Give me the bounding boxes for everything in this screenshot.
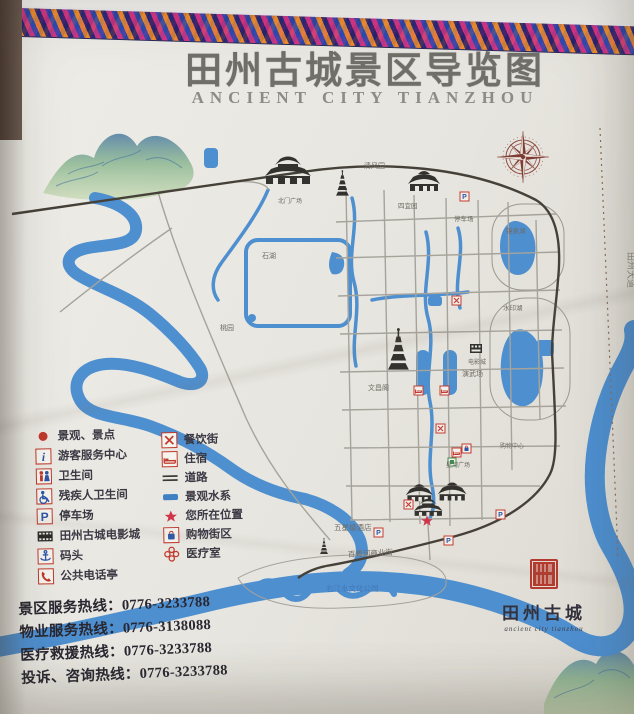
svg-text:P: P (376, 530, 381, 537)
svg-text:P: P (41, 509, 49, 523)
legend-item-shopping-district: 购物街区 (163, 525, 244, 543)
legend-item-visitor-center: i 游客服务中心 (35, 446, 139, 464)
label-shihu: 石湖 (262, 251, 276, 260)
legend-item-parking: P 停车场 (36, 506, 140, 524)
pavilion-icon (320, 538, 328, 554)
map-sign-photo: P P P P 清风园 北门广场 四宜园 停车场 镜泉湖 水印湖 石湖 桃园 文… (0, 0, 634, 714)
page-subtitle: ANCIENT CITY TIANZHOU (150, 88, 580, 108)
lodging-bed-icon (161, 450, 178, 467)
label-beimen-square: 北门广场 (278, 197, 302, 205)
label-culture-park: 右江水文化公园 (326, 583, 379, 593)
temple-hall-icon (438, 483, 467, 501)
label-jingquan-lake: 镜泉湖 (506, 226, 526, 235)
label-xinghe-square: 星河广场 (446, 461, 470, 469)
medical-room-icon (163, 545, 180, 562)
label-qingfengyuan: 清风园 (364, 161, 385, 170)
toilet-icon (35, 467, 52, 484)
shopping-bag-icon (163, 526, 180, 543)
svg-text:P: P (462, 194, 467, 201)
legend-item-lodging: 住宿 (161, 449, 242, 467)
compass-rose-icon (497, 131, 549, 183)
label-shopping-center: 购物中心 (500, 442, 524, 450)
label-right-road: 田州大道 (626, 252, 634, 288)
south-gate-icon (414, 499, 443, 516)
svg-text:P: P (446, 538, 451, 545)
legend-item-toilet: 卫生间 (35, 466, 139, 484)
pagoda-icon (336, 170, 349, 196)
road-lines-icon (161, 469, 178, 486)
legend-item-road: 道路 (161, 468, 242, 486)
accessible-toilet-icon (36, 487, 53, 504)
you-are-here-star-icon (162, 507, 179, 524)
brand-script: ancient city tianzhou (492, 625, 596, 633)
hotline-block: 景区服务热线：0776-3233788 物业服务热线：0776-3138088 … (18, 590, 228, 691)
legend-item-wharf: 码头 (37, 546, 141, 564)
cinema-filmstrip-icon (36, 527, 53, 544)
mountains-decoration-bottomright (544, 651, 634, 714)
public-phone-icon (37, 567, 54, 584)
label-cinema: 电影城 (468, 358, 486, 366)
label-wenchang-pavilion: 文昌阁 (368, 383, 389, 392)
seal-icon (529, 558, 559, 590)
label-commercial-street: 百粤河商业街 (348, 547, 394, 559)
legend-column-left: 景观、景点 i 游客服务中心 卫生间 残疾人卫生间 P 停车场 田州古城电影城 (34, 426, 141, 584)
legend-item-scenic-water: 景观水系 (162, 487, 243, 505)
brand-block: 田州古城 ancient city tianzhou (492, 558, 596, 633)
legend-item-cinema: 田州古城电影城 (36, 526, 140, 544)
label-yanwuchang: 演武场 (462, 369, 483, 378)
legend-item-medical-room: 医疗室 (163, 544, 244, 562)
board-edge-shadow (0, 120, 26, 714)
label-parking: 停车场 (454, 214, 474, 223)
label-shuiyin-lake: 水印湖 (503, 303, 523, 312)
label-siyiyuan: 四宜园 (398, 201, 418, 210)
label-taoyuan: 桃园 (220, 323, 234, 332)
label-hotel: 五星级酒店 (334, 522, 372, 532)
north-gate-icon (265, 157, 311, 185)
wall-corner-strip (0, 0, 22, 140)
parking-icon: P (36, 507, 53, 524)
scenic-spot-dot-icon (34, 427, 51, 444)
legend-item-public-phone: 公共电话亭 (37, 566, 141, 584)
legend-column-right: 餐饮街 住宿 道路 景观水系 您所在位置 购物街区 (161, 430, 244, 562)
legend-item-scenic-spot: 景观、景点 (34, 426, 138, 444)
hall-icon (408, 171, 440, 191)
scenic-water-swatch-icon (162, 488, 179, 505)
ponds-water (204, 148, 554, 406)
dining-street-icon (161, 431, 178, 448)
wharf-anchor-icon (37, 547, 54, 564)
svg-text:P: P (498, 512, 503, 519)
legend-item-dining-street: 餐饮街 (161, 430, 242, 448)
big-pagoda-icon (388, 328, 409, 369)
legend-item-accessible-toilet: 残疾人卫生间 (36, 486, 140, 504)
brand-name: 田州古城 (492, 599, 596, 624)
visitor-center-icon: i (35, 447, 52, 464)
legend-item-you-are-here: 您所在位置 (162, 506, 243, 524)
